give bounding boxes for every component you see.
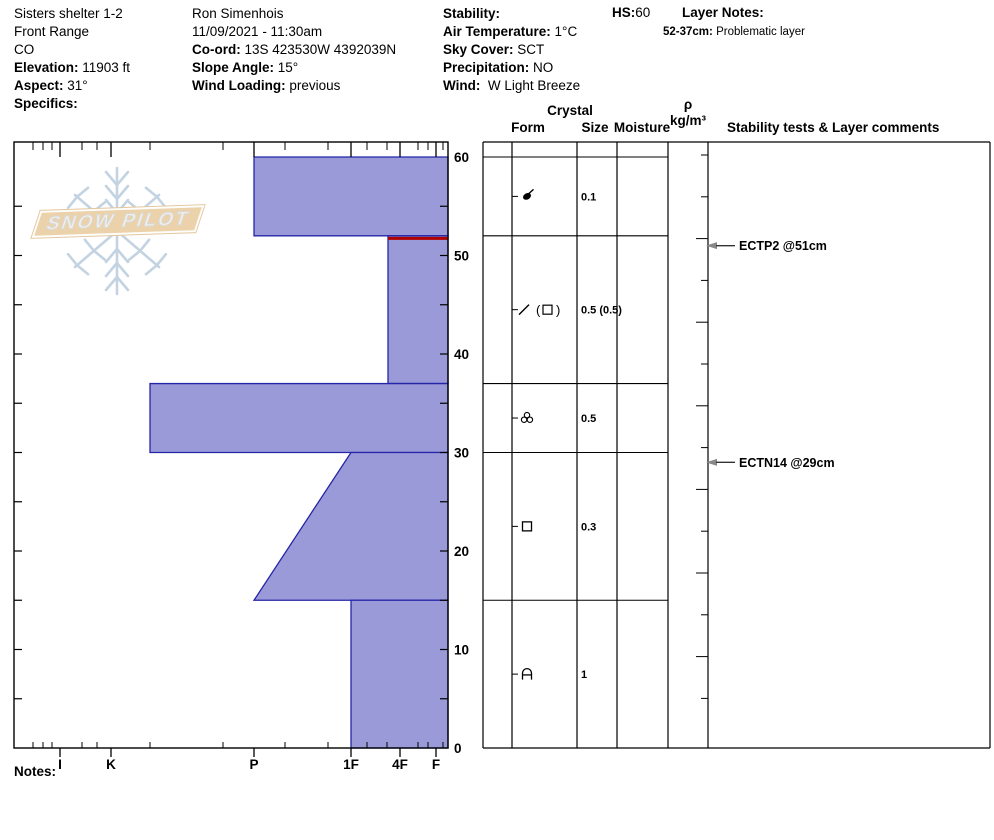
header-line: Slope Angle: 15° — [192, 59, 396, 77]
crystal-form-DF-FC-icon: () — [519, 303, 560, 318]
header-line: Wind Loading: previous — [192, 77, 396, 95]
layer-bar — [351, 600, 448, 748]
crystal-form-DH-icon — [523, 669, 532, 680]
crystal-form-DF-icon — [522, 189, 534, 201]
column-header-form: Form — [506, 120, 550, 135]
hardness-label: K — [106, 757, 116, 772]
field-label: Precipitation: — [443, 60, 533, 75]
field-value: 11/09/2021 - 11:30am — [192, 24, 322, 39]
hs-value: 60 — [635, 5, 650, 20]
header-line: Ron Simenhois — [192, 5, 396, 23]
header-line: CO — [14, 41, 130, 59]
header-line: Sky Cover: SCT — [443, 41, 580, 59]
depth-label: 20 — [454, 544, 469, 559]
field-value: previous — [289, 78, 340, 93]
notes-label: Notes: — [14, 764, 56, 779]
depth-label: 50 — [454, 249, 469, 264]
layer-note-text: Problematic layer — [716, 26, 805, 38]
field-label: Elevation: — [14, 60, 82, 75]
field-value: Sisters shelter 1-2 — [14, 6, 123, 21]
stability-test-label: ECTP2 @51cm — [739, 239, 827, 253]
field-value: 13S 423530W 4392039N — [244, 42, 396, 57]
layer-bar — [254, 453, 448, 601]
column-header-size: Size — [575, 120, 615, 135]
crystal-form-MF-icon — [521, 412, 532, 422]
depth-label: 10 — [454, 643, 469, 658]
layer-bar — [150, 384, 448, 453]
column-header-moisture: Moisture — [612, 120, 672, 135]
depth-label: 60 — [454, 150, 469, 165]
header-line: Specifics: — [14, 95, 130, 113]
crystal-form-FC-icon — [523, 522, 532, 531]
header-line: Air Temperature: 1°C — [443, 23, 580, 41]
crystal-size-value: 0.3 — [581, 521, 596, 533]
header-line: 11/09/2021 - 11:30am — [192, 23, 396, 41]
crystal-size-value: 0.5 (0.5) — [581, 305, 622, 317]
layer-note-range: 52-37cm: — [663, 26, 713, 38]
header-line: Precipitation: NO — [443, 59, 580, 77]
header-line: Front Range — [14, 23, 130, 41]
header-location-column: Sisters shelter 1-2Front RangeCOElevatio… — [14, 5, 130, 113]
crystal-size-value: 0.1 — [581, 191, 596, 203]
field-label: Co-ord: — [192, 42, 244, 57]
field-label: Aspect: — [14, 78, 67, 93]
hardness-label: F — [432, 757, 440, 772]
svg-text:(: ( — [536, 303, 541, 318]
header-line: Elevation: 11903 ft — [14, 59, 130, 77]
layer-notes-title: Layer Notes: — [682, 5, 764, 20]
header-line: Wind: W Light Breeze — [443, 77, 580, 95]
column-header-density-symbol: ρ — [668, 97, 708, 112]
depth-label: 40 — [454, 347, 469, 362]
column-header-stability-tests: Stability tests & Layer comments — [727, 120, 939, 135]
field-value: Front Range — [14, 24, 89, 39]
column-header-density-units: kg/m³ — [664, 113, 712, 128]
header-line: Co-ord: 13S 423530W 4392039N — [192, 41, 396, 59]
snowpilot-profile-page: { "header": { "columns": [ {"lines": [ {… — [0, 0, 994, 840]
column-header-crystal: Crystal — [535, 103, 605, 118]
layer-note-entry: 52-37cm: Problematic layer — [663, 25, 805, 40]
svg-text:): ) — [556, 303, 560, 318]
field-value: NO — [533, 60, 553, 75]
layer-bar — [254, 157, 448, 236]
hardness-label: 1F — [343, 757, 359, 772]
snowpilot-logo-text: SNOW PILOT — [43, 208, 192, 235]
field-label: Wind: — [443, 78, 484, 93]
field-label: Stability: — [443, 6, 504, 21]
hardness-label: 4F — [392, 757, 408, 772]
crystal-size-value: 1 — [581, 669, 587, 681]
field-label: Slope Angle: — [192, 60, 278, 75]
header-line: Aspect: 31° — [14, 77, 130, 95]
layer-bar — [388, 236, 448, 384]
field-value: 11903 ft — [82, 60, 130, 75]
field-value: 1°C — [555, 24, 578, 39]
hs-label: HS: — [612, 5, 635, 20]
depth-label: 0 — [454, 741, 462, 756]
hardness-label: P — [249, 757, 258, 772]
header-observer-column: Ron Simenhois11/09/2021 - 11:30amCo-ord:… — [192, 5, 396, 95]
stability-test-label: ECTN14 @29cm — [739, 456, 835, 470]
field-label: Specifics: — [14, 96, 82, 111]
field-value: Ron Simenhois — [192, 6, 284, 21]
hardness-label: I — [58, 757, 62, 772]
field-value: 31° — [67, 78, 87, 93]
field-value: W Light Breeze — [484, 78, 580, 93]
field-value: CO — [14, 42, 34, 57]
height-of-snow-field: HS:60 — [612, 5, 650, 20]
header-line: Stability: — [443, 5, 580, 23]
header-weather-column: Stability: Air Temperature: 1°CSky Cover… — [443, 5, 580, 95]
field-label: Air Temperature: — [443, 24, 555, 39]
depth-label: 30 — [454, 446, 469, 461]
field-label: Wind Loading: — [192, 78, 289, 93]
header-line: Sisters shelter 1-2 — [14, 5, 130, 23]
layer-notes-entries: 52-37cm: Problematic layer — [663, 25, 805, 40]
crystal-size-value: 0.5 — [581, 413, 596, 425]
field-value: SCT — [517, 42, 544, 57]
field-value: 15° — [278, 60, 298, 75]
field-label: Sky Cover: — [443, 42, 517, 57]
